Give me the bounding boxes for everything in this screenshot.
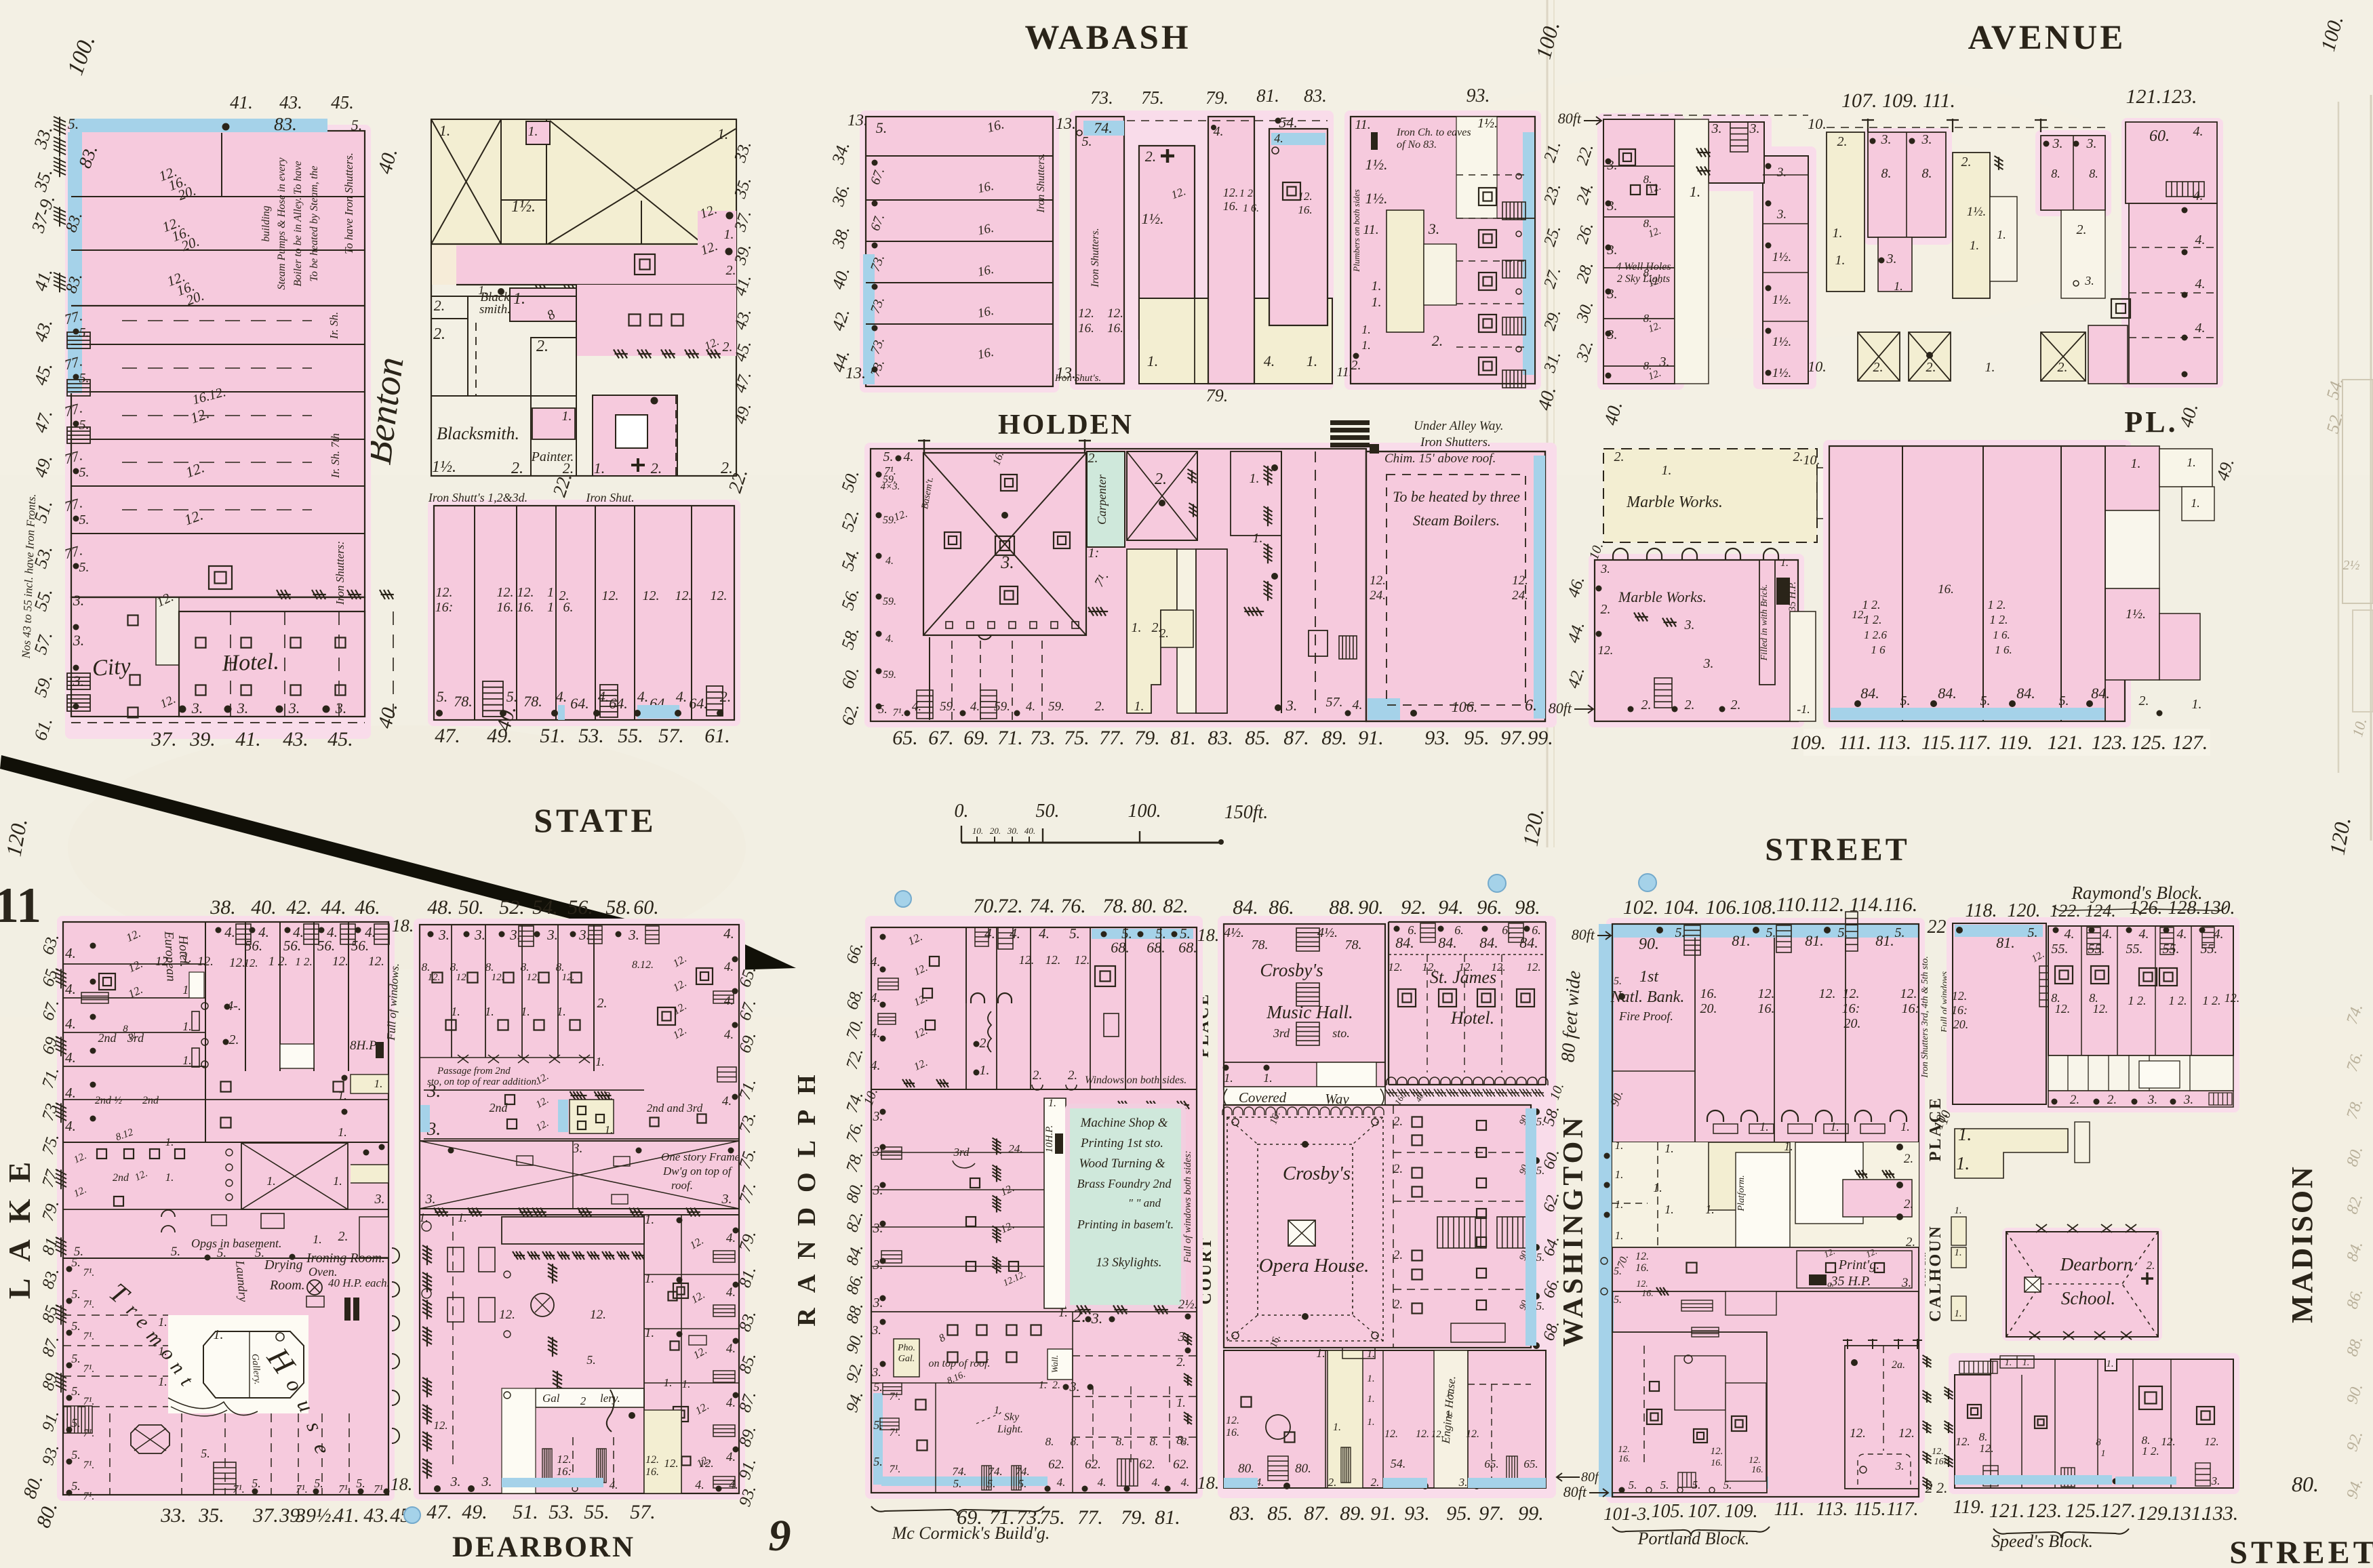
- svg-text:4.: 4.: [871, 954, 881, 969]
- svg-text:1.: 1.: [1367, 1348, 1375, 1360]
- svg-text:13.: 13.: [1056, 115, 1076, 133]
- svg-text:40.: 40.: [1024, 826, 1035, 836]
- svg-text:" " and: " " and: [1128, 1197, 1161, 1209]
- svg-text:48.: 48.: [427, 896, 453, 919]
- svg-text:1 2.: 1 2.: [1988, 598, 2006, 611]
- svg-text:92.: 92.: [1401, 896, 1427, 919]
- svg-text:8.: 8.: [1181, 1435, 1190, 1448]
- svg-text:43.: 43.: [283, 728, 308, 750]
- svg-text:1: 1: [547, 585, 554, 600]
- svg-text:20.: 20.: [990, 826, 1001, 836]
- svg-text:1½.: 1½.: [432, 458, 456, 476]
- svg-text:55.: 55.: [2126, 942, 2143, 957]
- svg-text:12.: 12.: [602, 588, 619, 603]
- svg-text:Printing 1st sto.: Printing 1st sto.: [1080, 1136, 1163, 1150]
- svg-text:2: 2: [580, 1394, 586, 1407]
- svg-text:83.: 83.: [274, 114, 297, 134]
- svg-text:Opgs in basement.: Opgs in basement.: [191, 1237, 282, 1250]
- svg-text:1.: 1.: [513, 290, 525, 308]
- svg-text:127.: 127.: [2100, 1500, 2136, 1522]
- svg-text:Iron Shut's.: Iron Shut's.: [1054, 373, 1102, 384]
- svg-text:51.: 51.: [513, 1501, 538, 1523]
- svg-text:12.: 12.: [2055, 1002, 2071, 1016]
- svg-text:3.: 3.: [1458, 1476, 1468, 1489]
- svg-text:41.: 41.: [235, 728, 261, 750]
- svg-text:4.: 4.: [2195, 321, 2206, 336]
- svg-text:1.: 1.: [1705, 1203, 1715, 1216]
- svg-text:5.: 5.: [79, 465, 89, 480]
- svg-text:12.: 12.: [428, 972, 441, 983]
- svg-text:2.: 2.: [597, 996, 607, 1011]
- svg-text:4.: 4.: [1152, 1476, 1161, 1489]
- svg-text:2.: 2.: [1641, 698, 1652, 712]
- svg-text:1.: 1.: [1367, 1373, 1374, 1384]
- svg-text:3.: 3.: [73, 632, 85, 649]
- svg-text:Wall.: Wall.: [1050, 1355, 1060, 1373]
- svg-text:2.: 2.: [1685, 698, 1695, 712]
- svg-text:3.: 3.: [2183, 1093, 2193, 1107]
- svg-text:1.: 1.: [1048, 1098, 1056, 1109]
- svg-text:24.: 24.: [1370, 588, 1386, 603]
- svg-text:5.: 5.: [1614, 1266, 1622, 1277]
- svg-text:87.: 87.: [1283, 727, 1309, 749]
- svg-text:125.: 125.: [2131, 731, 2167, 754]
- svg-text:1.: 1.: [1662, 463, 1672, 478]
- svg-text:40 H.P. each.: 40 H.P. each.: [328, 1276, 390, 1289]
- svg-text:106.: 106.: [1452, 698, 1478, 715]
- svg-text:12.: 12.: [1526, 961, 1540, 973]
- svg-text:2.: 2.: [1176, 1355, 1186, 1369]
- svg-text:a.: a.: [1827, 1279, 1834, 1289]
- svg-text:40.: 40.: [251, 896, 277, 919]
- svg-text:0.: 0.: [955, 801, 969, 822]
- svg-text:50.: 50.: [1036, 801, 1060, 822]
- svg-text:Iron Shutt's 1,2&3d.: Iron Shutt's 1,2&3d.: [428, 491, 527, 504]
- svg-text:4.: 4.: [556, 688, 567, 705]
- svg-text:1.: 1.: [1664, 1142, 1674, 1155]
- svg-text:4.: 4.: [1264, 353, 1275, 369]
- svg-text:107. 109. 111.: 107. 109. 111.: [1841, 89, 1955, 112]
- svg-text:Boiler to be in Alley. To have: Boiler to be in Alley. To have: [292, 161, 304, 286]
- svg-text:1 2.: 1 2.: [1990, 613, 2008, 626]
- svg-text:3.: 3.: [374, 1192, 385, 1207]
- svg-text:57.: 57.: [658, 725, 684, 747]
- svg-text:2.: 2.: [1371, 1476, 1380, 1489]
- svg-text:12.: 12.: [332, 954, 348, 969]
- svg-text:2.: 2.: [1328, 1476, 1337, 1489]
- svg-text:60.: 60.: [633, 896, 659, 919]
- svg-text:on top of roof.: on top of roof.: [929, 1358, 991, 1369]
- svg-text:130.: 130.: [2202, 898, 2235, 919]
- svg-text:2nd: 2nd: [142, 1095, 159, 1106]
- svg-text:12.: 12.: [1223, 186, 1239, 199]
- svg-text:5.: 5.: [1614, 1294, 1622, 1306]
- svg-text:European: European: [161, 930, 178, 982]
- svg-text:1.: 1.: [1759, 1120, 1769, 1133]
- svg-text:10.: 10.: [1808, 115, 1827, 132]
- svg-text:2.: 2.: [1873, 360, 1883, 375]
- svg-text:2.: 2.: [651, 460, 662, 477]
- svg-text:1.: 1.: [1367, 1417, 1374, 1428]
- svg-text:1.: 1.: [1445, 1409, 1453, 1420]
- svg-text:1.: 1.: [1835, 253, 1846, 268]
- svg-text:84.: 84.: [1938, 685, 1957, 702]
- svg-text:Printing in basem't.: Printing in basem't.: [1077, 1218, 1174, 1231]
- svg-text:2.: 2.: [1837, 134, 1848, 149]
- svg-text:WABASH: WABASH: [1024, 19, 1191, 57]
- svg-text:4.: 4.: [724, 960, 734, 974]
- svg-text:1.: 1.: [2131, 456, 2141, 471]
- svg-text:97.: 97.: [1479, 1502, 1504, 1525]
- svg-text:80ft: 80ft: [1558, 110, 1582, 127]
- svg-text:3.: 3.: [425, 1192, 436, 1207]
- svg-text:One story Frame: One story Frame: [661, 1150, 740, 1163]
- svg-text:5.: 5.: [356, 1476, 365, 1490]
- svg-text:5.: 5.: [1629, 1479, 1637, 1491]
- svg-text:4.: 4.: [871, 990, 881, 1005]
- svg-text:99.: 99.: [1528, 727, 1553, 749]
- svg-text:111.: 111.: [1839, 731, 1871, 754]
- svg-text:100.: 100.: [1128, 801, 1161, 822]
- svg-text:5.: 5.: [252, 1476, 261, 1490]
- svg-text:84.: 84.: [1438, 934, 1457, 951]
- svg-text:3.: 3.: [73, 672, 85, 689]
- svg-text:3.: 3.: [1703, 656, 1714, 671]
- svg-text:74.: 74.: [952, 1465, 966, 1478]
- svg-text:12.: 12.: [1045, 953, 1061, 967]
- svg-text:1.: 1.: [1615, 1229, 1624, 1242]
- svg-text:1 6.: 1 6.: [1995, 643, 2012, 656]
- svg-text:1.: 1.: [374, 1077, 383, 1090]
- svg-text:2.: 2.: [1159, 626, 1169, 640]
- svg-text:Dearborn: Dearborn: [2060, 1254, 2133, 1274]
- svg-text:Carpenter: Carpenter: [1095, 474, 1109, 525]
- svg-text:1½.: 1½.: [1365, 190, 1388, 207]
- svg-text:68.: 68.: [1146, 939, 1165, 956]
- svg-text:Steam Boilers.: Steam Boilers.: [1413, 512, 1500, 529]
- svg-text:12.: 12.: [229, 956, 245, 970]
- svg-text:3.: 3.: [2147, 1093, 2157, 1107]
- svg-text:77.: 77.: [1099, 727, 1125, 749]
- svg-text:5.: 5.: [201, 1447, 210, 1460]
- svg-text:3.: 3.: [1776, 207, 1787, 222]
- svg-text:8H.P.: 8H.P.: [350, 1039, 378, 1053]
- svg-text:42.: 42.: [286, 896, 312, 919]
- svg-text:1 2.: 1 2.: [2128, 994, 2147, 1007]
- svg-text:4.: 4.: [2195, 277, 2206, 292]
- svg-text:5.: 5.: [1536, 1300, 1545, 1312]
- svg-text:81.: 81.: [1732, 932, 1751, 949]
- svg-text:64.: 64.: [689, 695, 708, 712]
- svg-text:127.: 127.: [2172, 731, 2208, 754]
- svg-text:3.: 3.: [628, 927, 639, 943]
- svg-text:56.: 56.: [317, 938, 335, 954]
- svg-text:8: 8: [2096, 1437, 2101, 1448]
- svg-text:16.: 16.: [517, 600, 534, 615]
- svg-text:78.: 78.: [1252, 938, 1269, 952]
- svg-text:81.: 81.: [1155, 1506, 1180, 1529]
- svg-text:2.: 2.: [980, 1036, 990, 1051]
- svg-text:AVENUE: AVENUE: [1968, 19, 2126, 57]
- svg-text:12.: 12.: [1466, 1428, 1479, 1440]
- svg-text:Hotel.: Hotel.: [1450, 1008, 1494, 1028]
- svg-text:4.: 4.: [2102, 927, 2113, 942]
- svg-text:82.: 82.: [1163, 895, 1189, 917]
- svg-text:1.: 1.: [182, 951, 192, 965]
- svg-text:3.: 3.: [572, 1141, 583, 1156]
- svg-text:1.: 1.: [1833, 226, 1843, 241]
- svg-text:2.: 2.: [1432, 332, 1443, 349]
- svg-text:4.: 4.: [2195, 233, 2206, 247]
- svg-text:55.: 55.: [584, 1501, 610, 1523]
- svg-text:62.: 62.: [1139, 1458, 1155, 1472]
- svg-text:5.: 5.: [586, 1353, 596, 1367]
- svg-text:7¹.: 7¹.: [893, 707, 904, 719]
- svg-text:7¹.: 7¹.: [338, 1483, 351, 1495]
- svg-text:13.: 13.: [848, 112, 868, 129]
- svg-text:16.: 16.: [1618, 1454, 1631, 1464]
- svg-text:2.: 2.: [1393, 1162, 1403, 1176]
- svg-text:3.: 3.: [1069, 1380, 1080, 1394]
- svg-text:59.: 59.: [883, 596, 896, 607]
- svg-text:18.: 18.: [1197, 1473, 1220, 1493]
- svg-text:37.: 37.: [151, 728, 177, 750]
- svg-text:75.: 75.: [1141, 87, 1164, 108]
- svg-text:83.: 83.: [1304, 85, 1327, 106]
- svg-text:10.: 10.: [972, 826, 983, 836]
- svg-text:97.: 97.: [1500, 727, 1526, 749]
- svg-text:54.: 54.: [532, 896, 558, 919]
- svg-text:1.: 1.: [1316, 1346, 1325, 1360]
- svg-text:12.: 12.: [2204, 1435, 2218, 1448]
- svg-text:1.: 1.: [1956, 1153, 1970, 1173]
- svg-text:101-3.: 101-3.: [1603, 1504, 1651, 1524]
- svg-text:8.: 8.: [1922, 166, 1932, 181]
- svg-text:Chim. 15' above roof.: Chim. 15' above roof.: [1384, 451, 1496, 466]
- svg-text:121.: 121.: [2048, 731, 2083, 754]
- svg-text:Windows on both sides.: Windows on both sides.: [1085, 1074, 1186, 1086]
- svg-text:2.: 2.: [1926, 360, 1936, 375]
- svg-text:5.: 5.: [1980, 693, 1991, 708]
- svg-text:16.: 16.: [1298, 203, 1312, 216]
- svg-text:1.: 1.: [1954, 1247, 1961, 1258]
- svg-text:4.: 4.: [970, 700, 980, 714]
- svg-text:87.: 87.: [1304, 1502, 1330, 1525]
- svg-text:Iron Shutters.: Iron Shutters.: [1420, 435, 1491, 449]
- svg-text:Ironing Room.: Ironing Room.: [306, 1251, 385, 1266]
- svg-text:4.: 4.: [726, 1396, 736, 1410]
- svg-text:52.: 52.: [499, 896, 525, 919]
- svg-text:12.: 12.: [1932, 1447, 1944, 1457]
- svg-text:2.: 2.: [1393, 1114, 1403, 1129]
- svg-text:70.: 70.: [973, 895, 999, 917]
- svg-text:12.: 12.: [699, 1457, 713, 1470]
- svg-text:1.: 1.: [1176, 1396, 1186, 1409]
- svg-text:18.: 18.: [1197, 925, 1220, 945]
- svg-text:1½.: 1½.: [511, 198, 536, 216]
- svg-text:47.: 47.: [435, 725, 460, 747]
- svg-text:2.: 2.: [1068, 1068, 1077, 1083]
- svg-text:7¹.: 7¹.: [83, 1363, 95, 1375]
- svg-text:Filled in with Brick.: Filled in with Brick.: [1759, 584, 1770, 662]
- svg-text:95.: 95.: [1446, 1502, 1472, 1525]
- svg-text:Iron Shutters.: Iron Shutters.: [1090, 228, 1101, 287]
- svg-text:126.: 126.: [2130, 898, 2163, 919]
- svg-text:1.: 1.: [1958, 1124, 1972, 1144]
- svg-text:16.: 16.: [1223, 199, 1239, 213]
- svg-text:5.: 5.: [1895, 925, 1905, 940]
- svg-text:1 6.: 1 6.: [1993, 628, 2010, 641]
- svg-text:57.: 57.: [1326, 695, 1343, 710]
- svg-text:18.: 18.: [392, 916, 414, 936]
- svg-text:30.: 30.: [1007, 826, 1018, 836]
- svg-text:Hotel.: Hotel.: [221, 649, 279, 677]
- svg-text:1½.: 1½.: [1772, 293, 1792, 307]
- svg-text:88.: 88.: [1329, 896, 1355, 919]
- svg-text:1.: 1.: [1039, 1380, 1047, 1391]
- svg-text:12.: 12.: [1955, 1435, 1970, 1448]
- svg-text:150ft.: 150ft.: [1224, 802, 1269, 823]
- svg-text:sto, on top of rear addition.: sto, on top of rear addition.: [427, 1077, 539, 1087]
- svg-text:12.: 12.: [1952, 989, 1968, 1003]
- svg-text:44.: 44.: [321, 896, 346, 919]
- svg-text:3.: 3.: [288, 700, 300, 717]
- svg-text:1.: 1.: [1253, 531, 1263, 546]
- svg-text:3.: 3.: [1886, 252, 1897, 266]
- svg-text:84.: 84.: [1860, 685, 1879, 702]
- svg-text:12.: 12.: [1749, 1455, 1761, 1466]
- svg-text:1.: 1.: [1250, 471, 1260, 486]
- svg-text:107.: 107.: [1688, 1501, 1721, 1522]
- svg-text:1.: 1.: [1894, 279, 1903, 293]
- svg-text:1.: 1.: [664, 1376, 673, 1389]
- svg-text:110.112.: 110.112.: [1776, 893, 1845, 916]
- svg-text:59.: 59.: [883, 669, 896, 681]
- svg-text:12.: 12.: [590, 1308, 606, 1322]
- svg-text:12.: 12.: [562, 972, 575, 983]
- svg-text:16.: 16.: [497, 600, 514, 615]
- svg-text:84.: 84.: [2091, 685, 2110, 702]
- svg-text:1.: 1.: [1058, 1306, 1068, 1319]
- svg-text:1.: 1.: [605, 1123, 614, 1136]
- svg-text:5.: 5.: [71, 1416, 81, 1430]
- svg-text:12.: 12.: [433, 1419, 447, 1432]
- svg-text:16.: 16.: [1700, 986, 1717, 1001]
- svg-text:3.: 3.: [2084, 274, 2094, 287]
- svg-text:2.: 2.: [723, 340, 733, 355]
- svg-text:5.: 5.: [1660, 1479, 1669, 1491]
- svg-text:77.: 77.: [1077, 1506, 1103, 1529]
- svg-text:1½.: 1½.: [1142, 210, 1164, 227]
- svg-text:1 2.: 1 2.: [295, 955, 313, 968]
- svg-text:Covered: Covered: [1239, 1089, 1287, 1106]
- svg-text:12.: 12.: [1850, 1426, 1866, 1441]
- svg-text:8.: 8.: [2089, 167, 2098, 180]
- svg-text:Machine Shop &: Machine Shop &: [1080, 1116, 1168, 1130]
- svg-text:7¹.: 7¹.: [890, 1464, 901, 1475]
- svg-text:2a.: 2a.: [1892, 1359, 1905, 1371]
- svg-text:74.: 74.: [988, 1465, 1002, 1478]
- svg-text:2½: 2½: [2343, 558, 2360, 573]
- svg-text:5.: 5.: [876, 119, 888, 136]
- svg-text:5.: 5.: [1900, 693, 1911, 708]
- svg-text:118.: 118.: [1966, 900, 1997, 921]
- svg-text:12.: 12.: [1431, 1429, 1444, 1440]
- svg-text:5.: 5.: [1766, 925, 1776, 940]
- svg-text:2 Sky Lights: 2 Sky Lights: [1617, 273, 1670, 285]
- svg-text:1.: 1.: [451, 1005, 460, 1018]
- svg-text:16:: 16:: [1902, 1001, 1920, 1016]
- svg-text:7¹.: 7¹.: [83, 1267, 95, 1279]
- svg-text:3.: 3.: [2211, 1474, 2220, 1487]
- svg-text:MADISON: MADISON: [2286, 1165, 2319, 1323]
- svg-text:86.: 86.: [1269, 896, 1294, 919]
- svg-text:2.: 2.: [1904, 1197, 1913, 1211]
- svg-text:1½.: 1½.: [1772, 335, 1792, 349]
- svg-text:4.: 4.: [1026, 700, 1035, 714]
- svg-text:4 Well Holes: 4 Well Holes: [1616, 261, 1671, 273]
- svg-text:4.: 4.: [726, 1450, 736, 1464]
- svg-text:12.: 12.: [492, 972, 504, 983]
- svg-text:74.: 74.: [1029, 895, 1055, 917]
- svg-text:12.: 12.: [2093, 1002, 2109, 1016]
- svg-text:102.: 102.: [1623, 896, 1659, 919]
- svg-text:12.: 12.: [243, 957, 258, 969]
- svg-text:12.: 12.: [1900, 986, 1917, 1001]
- svg-text:59.: 59.: [883, 474, 896, 485]
- svg-text:1.: 1.: [2192, 697, 2202, 712]
- svg-text:1.: 1.: [557, 1005, 566, 1018]
- svg-text:8.: 8.: [1881, 166, 1892, 181]
- svg-text:1½.: 1½.: [1772, 250, 1792, 264]
- svg-text:117.: 117.: [1957, 731, 1991, 754]
- svg-text:7¹.: 7¹.: [83, 1460, 95, 1471]
- svg-text:1.: 1.: [1970, 239, 1979, 253]
- svg-text:WASHINGTON: WASHINGTON: [1558, 1114, 1589, 1346]
- svg-text:4.: 4.: [904, 449, 914, 464]
- svg-text:1.: 1.: [682, 1378, 691, 1390]
- svg-text:-1.: -1.: [1797, 702, 1810, 716]
- svg-text:4.: 4.: [726, 1342, 736, 1356]
- svg-text:Iron Shut.: Iron Shut.: [585, 491, 634, 504]
- svg-text:1.: 1.: [1985, 360, 1995, 375]
- svg-text:54.: 54.: [1279, 114, 1298, 131]
- svg-text:1.: 1.: [1780, 557, 1789, 569]
- svg-text:5.: 5.: [953, 1477, 962, 1490]
- svg-text:4½.: 4½.: [1317, 925, 1338, 940]
- svg-text:121.: 121.: [1989, 1500, 2025, 1522]
- svg-text:4.: 4.: [695, 1478, 704, 1491]
- svg-text:2½.: 2½.: [1178, 1298, 1198, 1312]
- svg-text:5.: 5.: [873, 1380, 883, 1394]
- svg-text:53.: 53.: [549, 1501, 574, 1523]
- svg-text:LAKE: LAKE: [2, 1146, 37, 1299]
- svg-text:84.: 84.: [1395, 934, 1414, 951]
- svg-text:68.: 68.: [1178, 939, 1197, 956]
- svg-text:4.: 4.: [1039, 925, 1050, 942]
- svg-text:10.: 10.: [1803, 453, 1820, 468]
- svg-text:79.: 79.: [1206, 386, 1229, 405]
- svg-text:1.: 1.: [478, 283, 487, 297]
- svg-text:1: 1: [547, 600, 554, 615]
- svg-text:Gal.: Gal.: [898, 1354, 915, 1364]
- svg-text:16.: 16.: [645, 1466, 659, 1478]
- svg-text:41.: 41.: [230, 92, 253, 113]
- svg-text:3.: 3.: [1921, 132, 1932, 147]
- svg-text:Plumbers on both sides: Plumbers on both sides: [1351, 189, 1361, 273]
- svg-text:Opera House.: Opera House.: [1259, 1255, 1370, 1276]
- svg-text:16.: 16.: [1078, 321, 1094, 336]
